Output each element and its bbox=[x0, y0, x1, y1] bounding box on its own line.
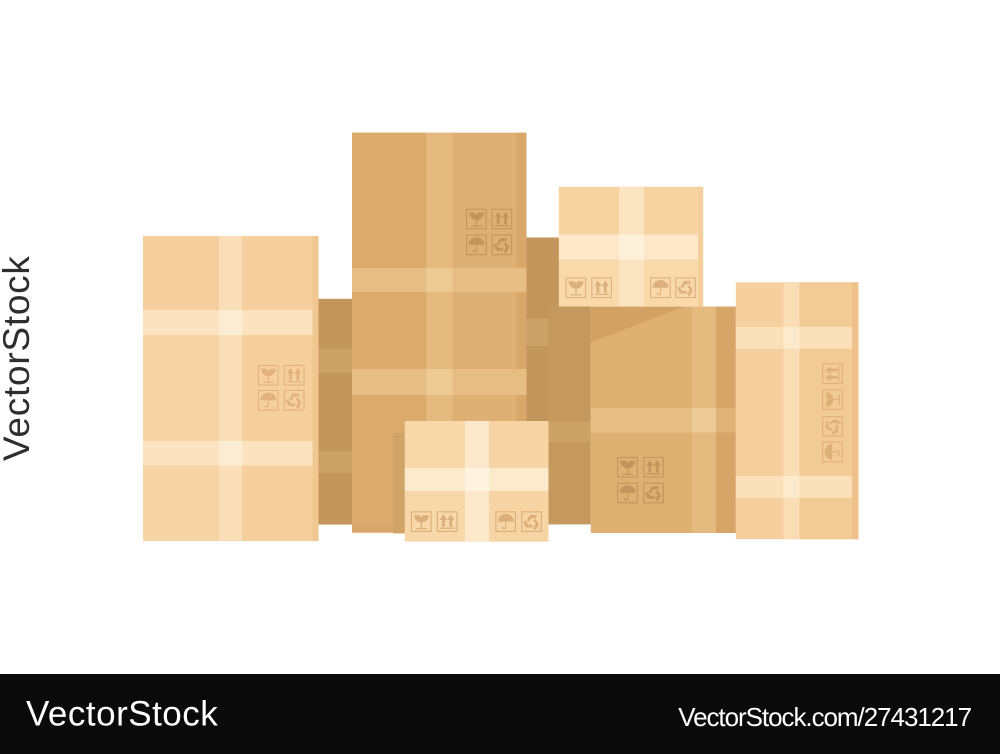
svg-text:VectorStock: VectorStock bbox=[0, 255, 37, 461]
svg-text:VectorStock: VectorStock bbox=[26, 695, 218, 734]
svg-text:VectorStock.com/27431217: VectorStock.com/27431217 bbox=[678, 702, 971, 732]
